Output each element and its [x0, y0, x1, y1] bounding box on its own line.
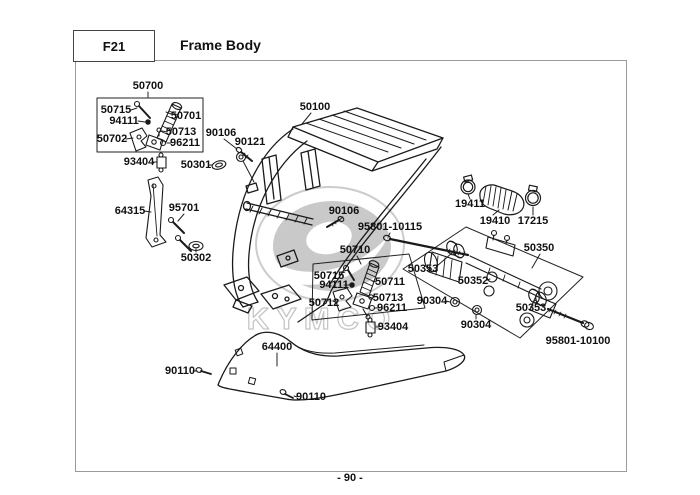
part-label-95801-10100: 95801-10100 [546, 335, 611, 347]
parts-box-50350 [403, 227, 583, 338]
part-label-50353-b: 50353 [516, 302, 547, 314]
part-label-50712: 50712 [309, 297, 340, 309]
part-label-64400: 64400 [262, 341, 293, 353]
part-label-90304-b: 90304 [461, 319, 492, 331]
page-title: Frame Body [180, 30, 261, 60]
part-label-90110-a: 90110 [165, 365, 195, 377]
part-label-50711: 50711 [375, 276, 405, 288]
bolt-95801-10100 [548, 308, 594, 331]
part-label-50301: 50301 [181, 159, 212, 171]
section-code-box: F21 [73, 30, 155, 62]
part-label-93404-b: 93404 [378, 321, 409, 333]
part-label-95801-10115: 95801-10115 [358, 221, 422, 233]
bracket-50702 [130, 128, 147, 151]
cover-screws [196, 367, 293, 398]
part-label-19410: 19410 [480, 215, 511, 227]
washer-50301 [211, 159, 227, 170]
part-label-95701: 95701 [169, 202, 200, 214]
part-label-94111-a: 94111 [109, 115, 138, 127]
part-label-19411: 19411 [455, 198, 485, 210]
part-label-96211-b: 96211 [377, 302, 407, 314]
clip-93404a [157, 153, 166, 172]
stand-bracket-64315 [146, 177, 166, 247]
parts-catalog-page: F21 Frame Body KYMCO [0, 0, 700, 495]
nut-90121 [237, 153, 246, 162]
part-label-50702: 50702 [97, 133, 128, 145]
hanger-top-bracket [486, 231, 515, 257]
section-code: F21 [103, 39, 125, 54]
part-label-50302: 50302 [181, 252, 212, 264]
part-label-94111-b: 94111 [319, 279, 348, 291]
part-label-90106-b: 90106 [329, 205, 360, 217]
part-label-90110-b: 90110 [296, 391, 326, 403]
part-label-50352: 50352 [458, 275, 489, 287]
screws-95701 [169, 218, 192, 252]
screw-90110L [196, 367, 211, 374]
part-label-90304-a: 90304 [417, 295, 448, 307]
washer-94111a [146, 120, 150, 124]
washer-94111b [350, 283, 354, 287]
part-label-64315: 64315 [115, 205, 146, 217]
part-label-50100: 50100 [300, 101, 331, 113]
part-label-93404-a: 93404 [124, 156, 155, 168]
collar-50352b [484, 286, 494, 296]
part-label-90106-a: 90106 [206, 127, 237, 139]
under-cover-part [218, 332, 465, 400]
screw-90110B [279, 389, 293, 398]
part-label-50710: 50710 [340, 244, 371, 256]
part-label-50353-a: 50353 [408, 263, 439, 275]
part-label-50350: 50350 [524, 242, 555, 254]
part-label-17215: 17215 [518, 215, 549, 227]
part-label-96211-a: 96211 [170, 137, 200, 149]
duct-19410 [480, 185, 524, 215]
part-label-90121: 90121 [235, 136, 266, 148]
part-label-50700: 50700 [133, 80, 164, 92]
part-label-50701: 50701 [171, 110, 202, 122]
page-number: - 90 - [0, 472, 700, 484]
